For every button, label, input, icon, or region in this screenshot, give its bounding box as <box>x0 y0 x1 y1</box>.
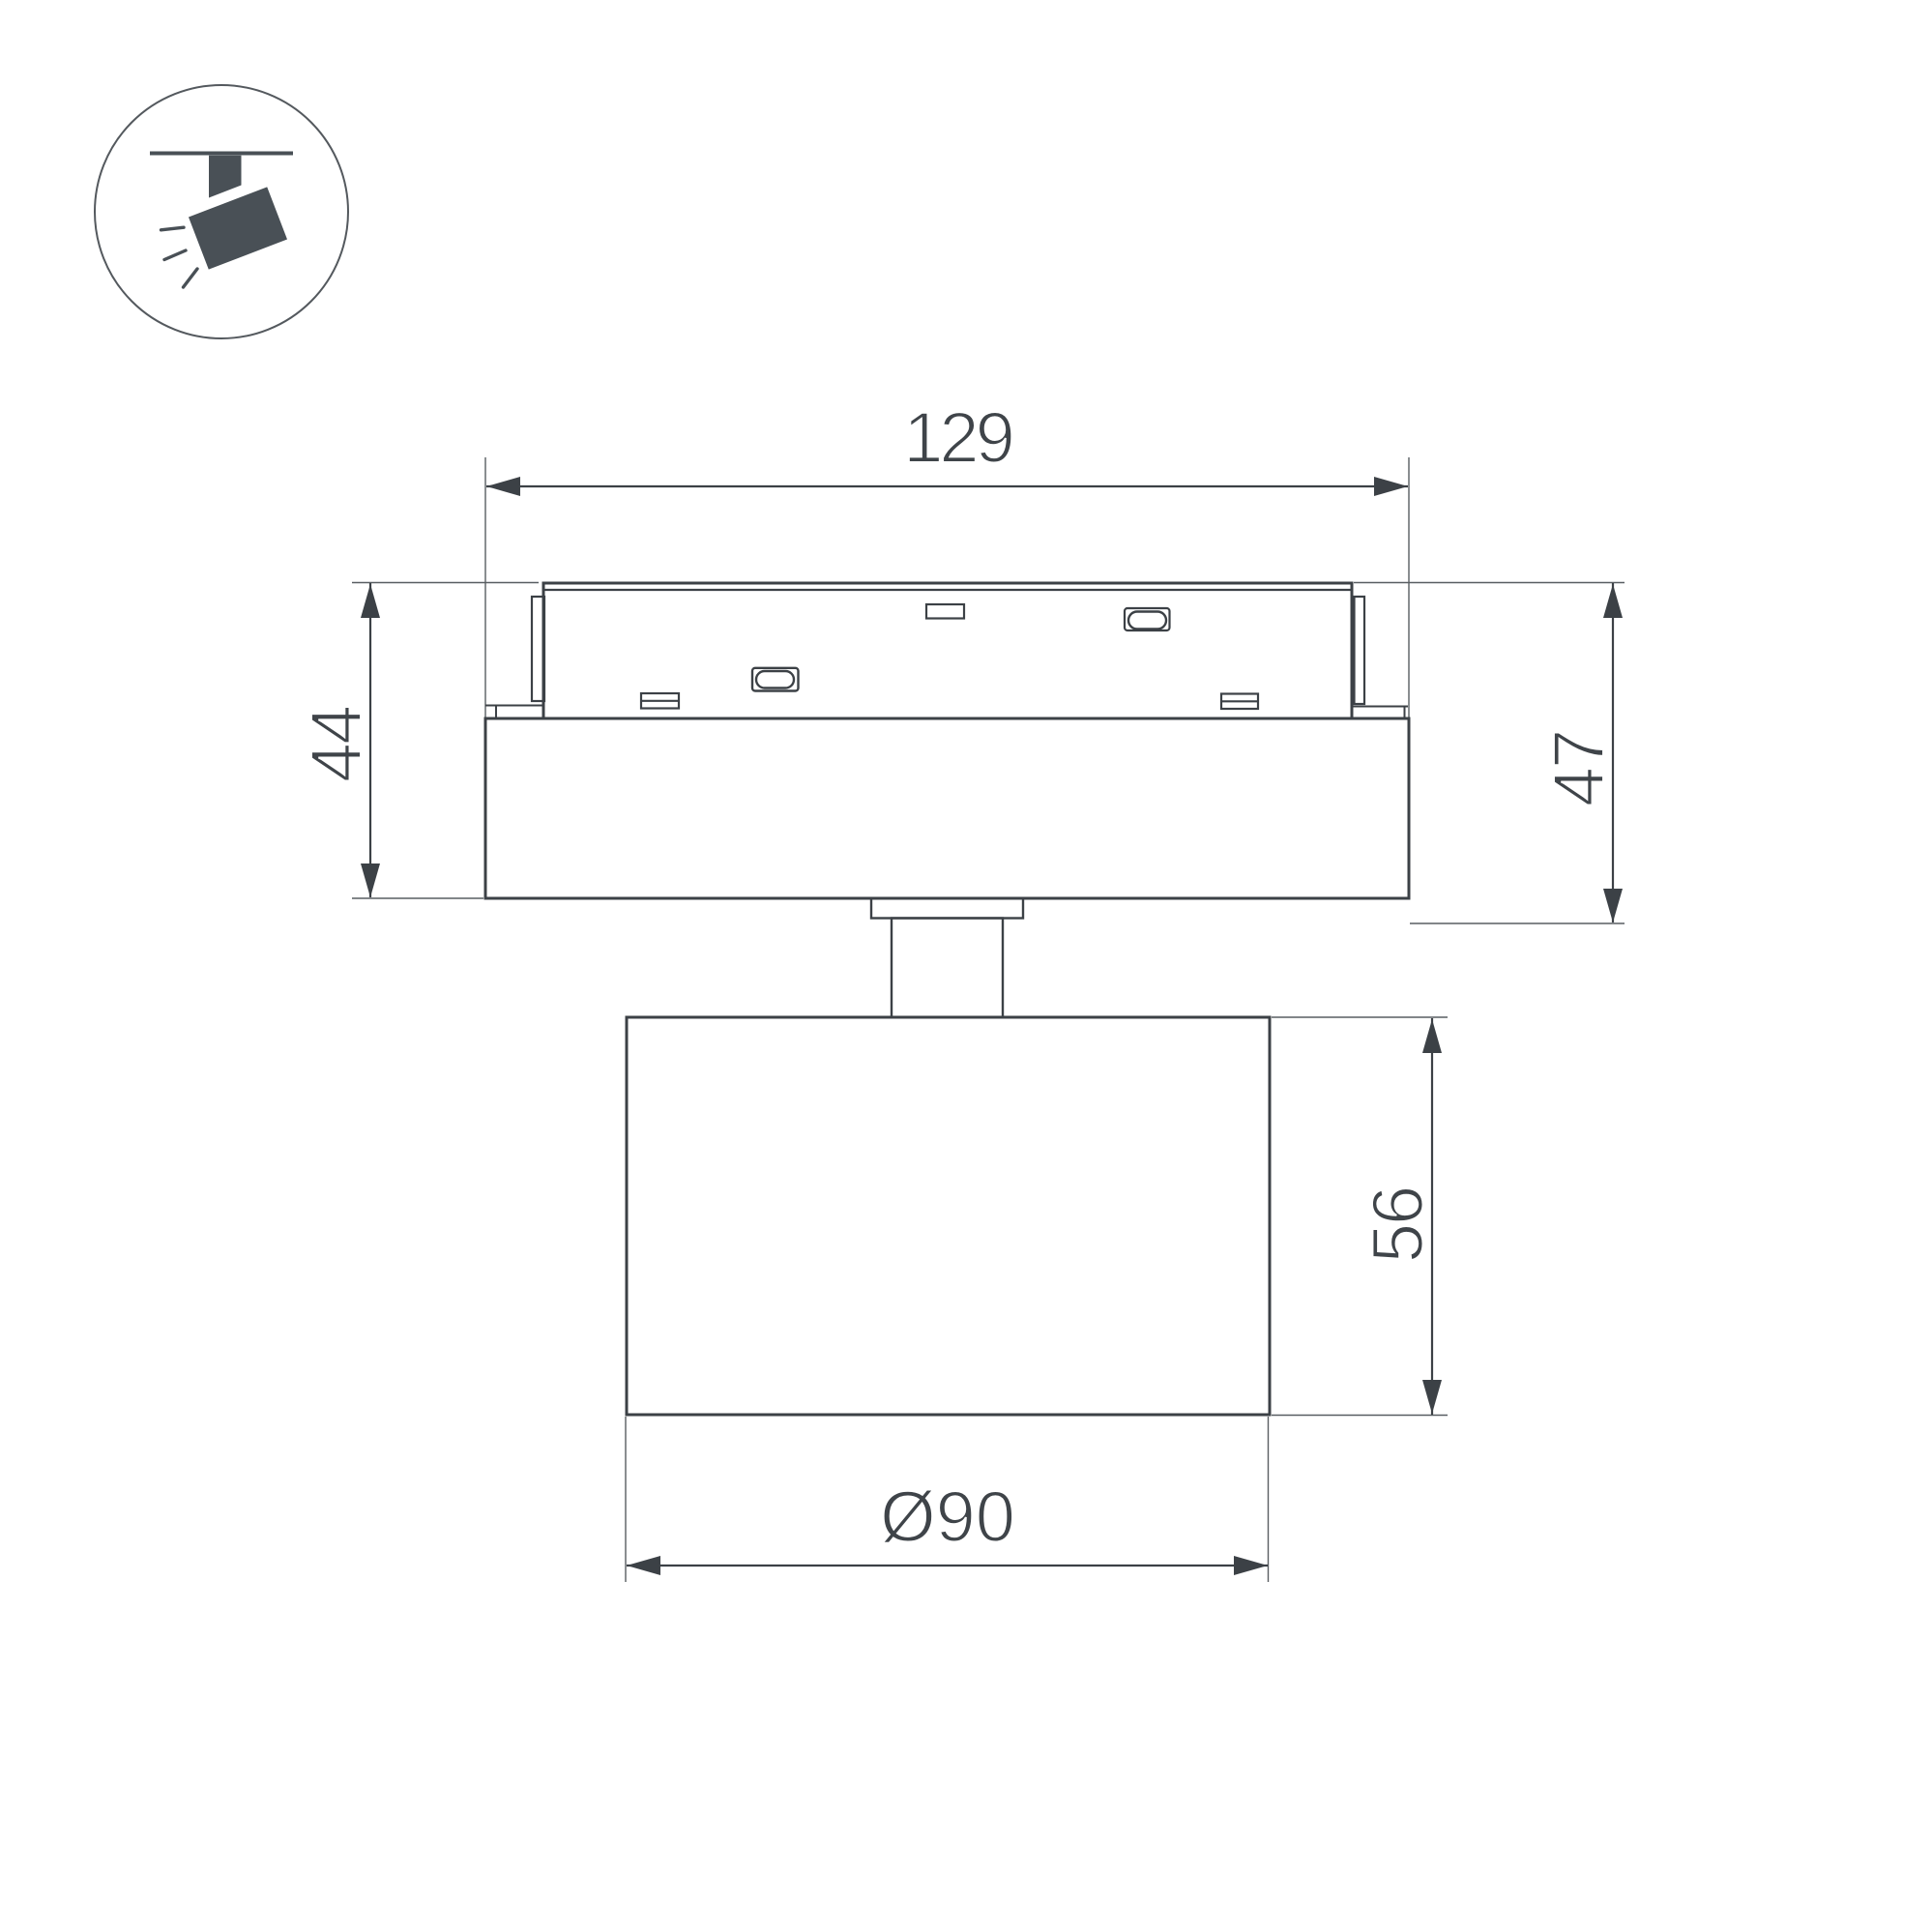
svg-text:47: 47 <box>1538 731 1619 806</box>
svg-text:44: 44 <box>296 707 376 782</box>
svg-text:129: 129 <box>903 397 1011 478</box>
svg-text:56: 56 <box>1358 1187 1438 1263</box>
svg-text:Ø90: Ø90 <box>880 1477 1015 1557</box>
